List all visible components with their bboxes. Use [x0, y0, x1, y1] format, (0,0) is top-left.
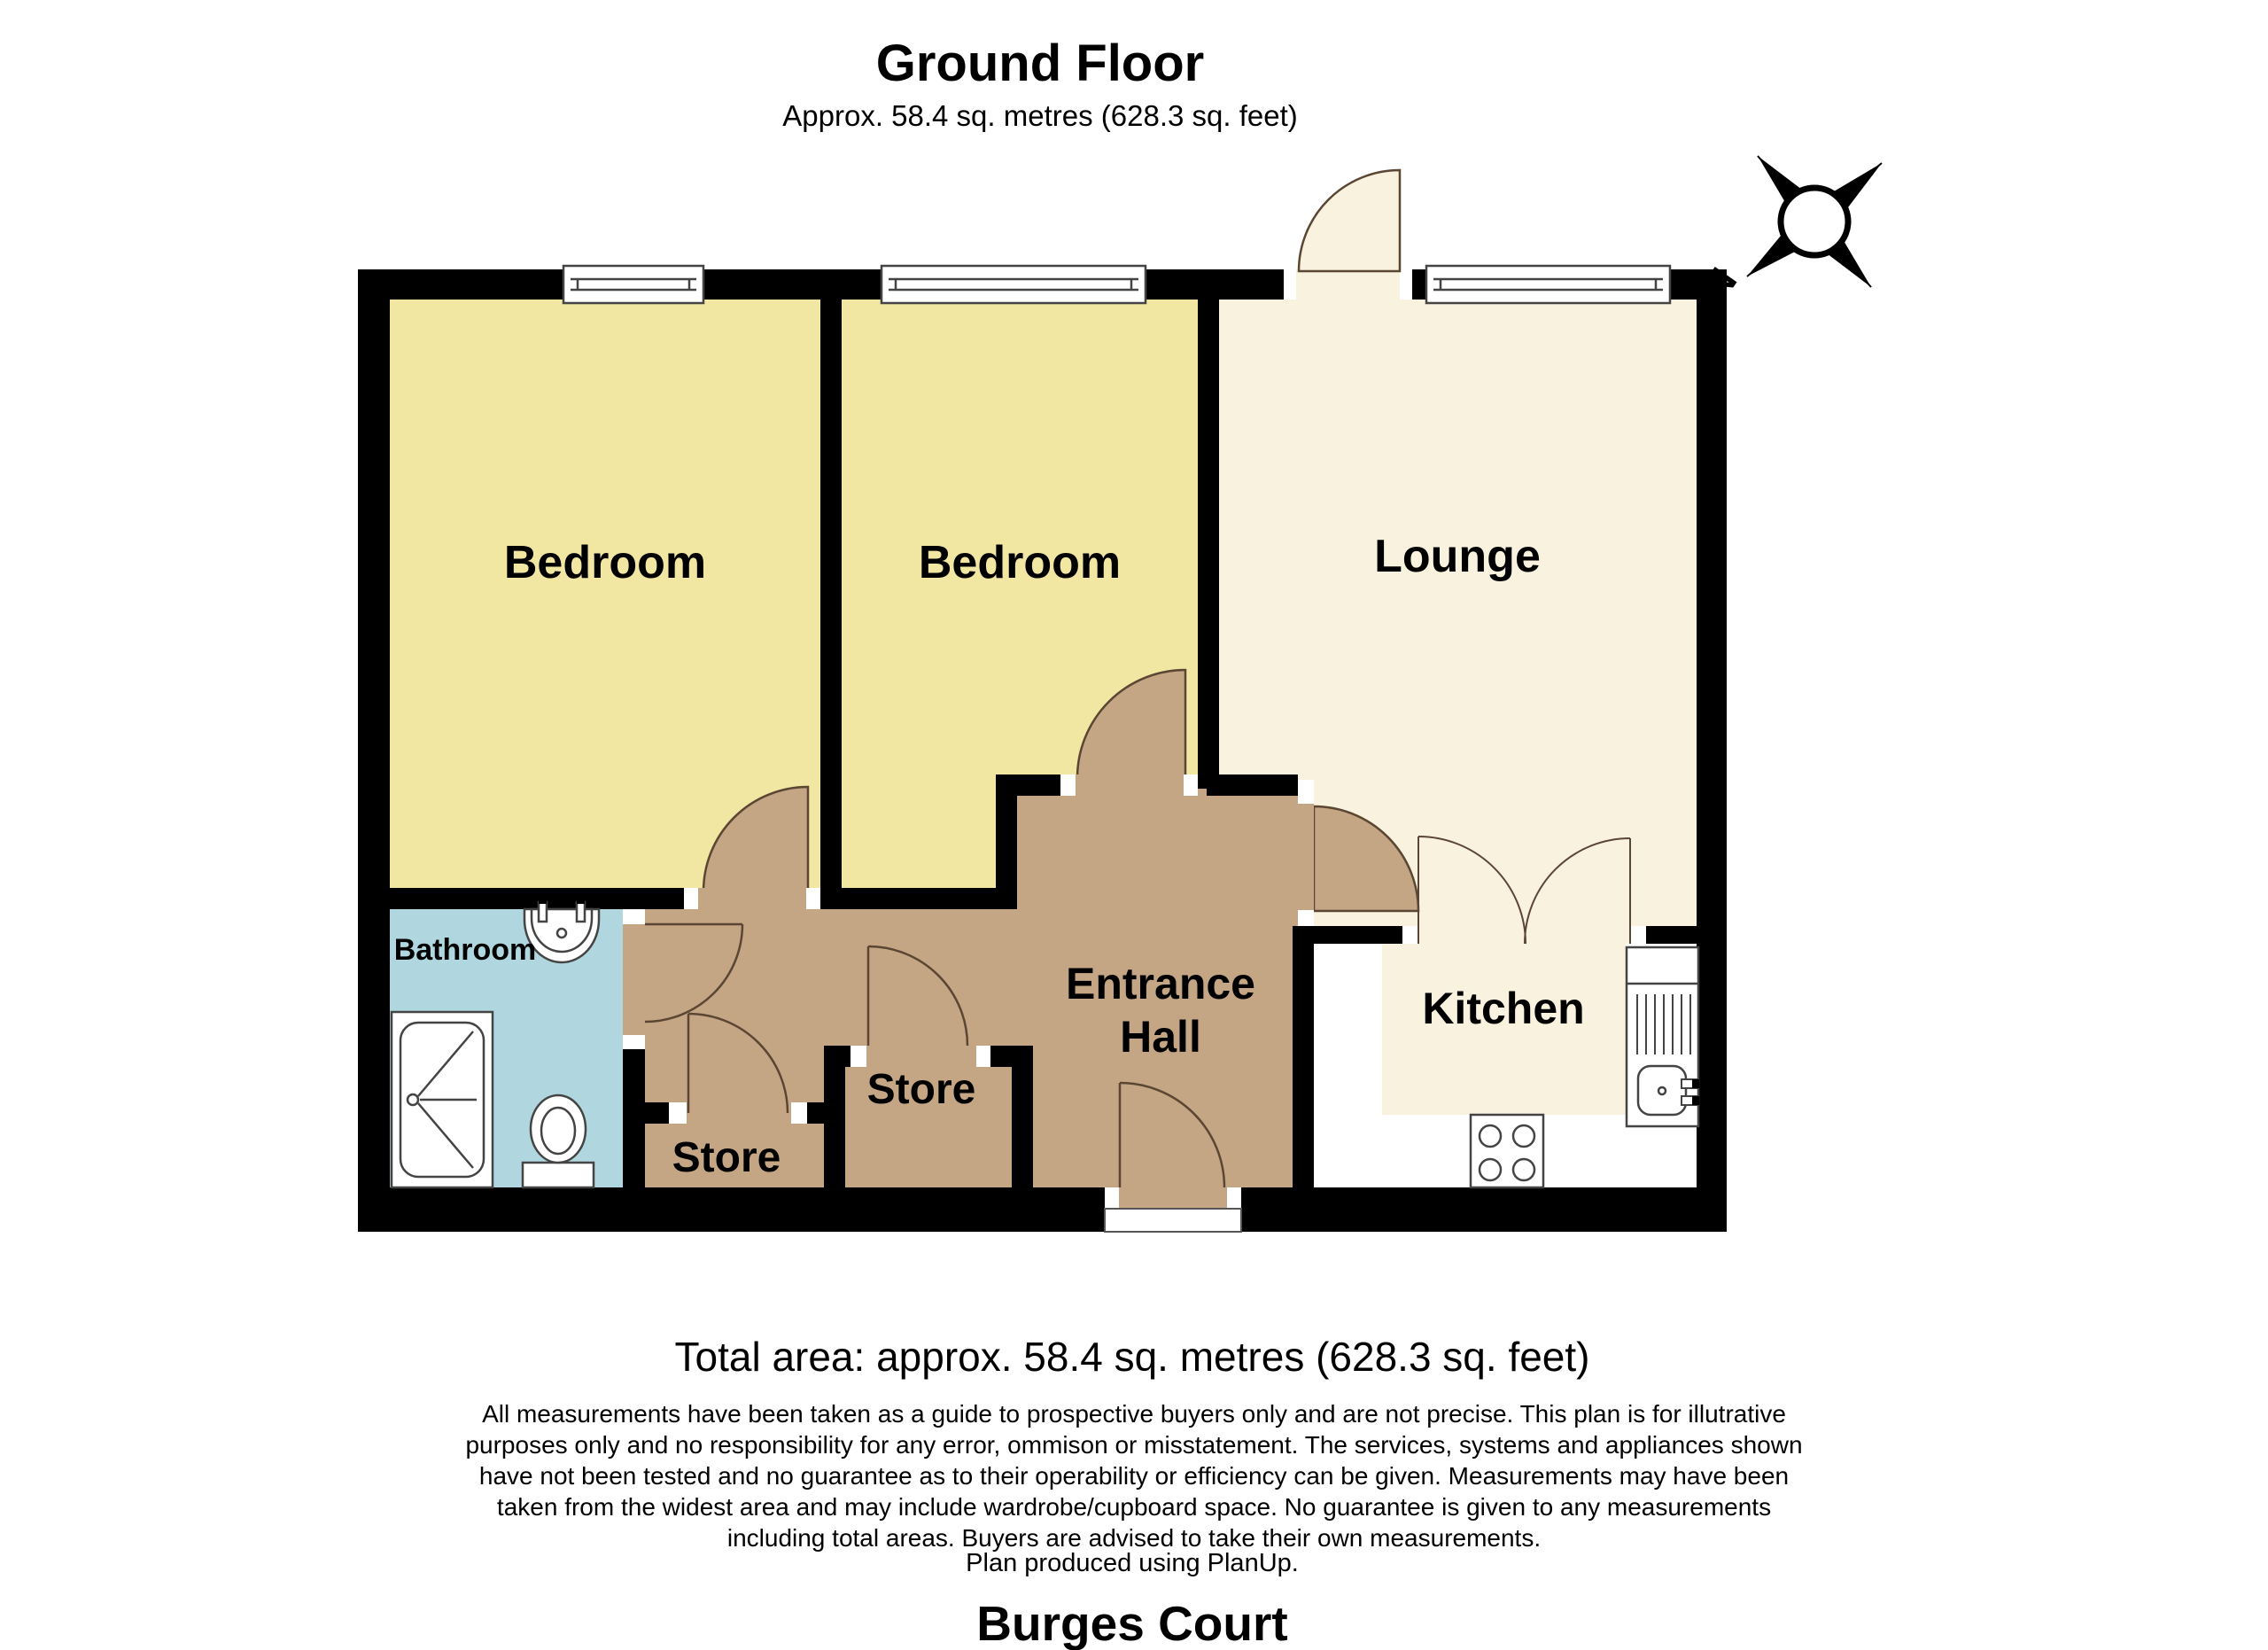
- room-label-store1: Store: [672, 1134, 781, 1181]
- room-label-bathroom: Bathroom: [394, 933, 537, 967]
- kitchen-sink-icon: [1627, 947, 1699, 1126]
- compass-circle: [1781, 188, 1848, 255]
- bath-icon: [392, 1012, 493, 1187]
- bedroom-divider-wall: [820, 300, 842, 909]
- property-name: Burges Court: [976, 1595, 1287, 1650]
- disclaimer-line: have not been tested and no guarantee as…: [0, 1460, 2268, 1491]
- window-lounge: [1426, 266, 1670, 303]
- hall-kitchen-wall: [1293, 926, 1314, 1187]
- lounge-external-door-swing: [1299, 170, 1400, 271]
- window-bedroom1: [563, 266, 703, 303]
- front-door-threshold: [1105, 1209, 1241, 1232]
- disclaimer-line: purposes only and no responsibility for …: [0, 1429, 2268, 1460]
- total-area-text: Total area: approx. 58.4 sq. metres (628…: [674, 1333, 1589, 1381]
- disclaimer-line: taken from the widest area and may inclu…: [0, 1491, 2268, 1522]
- floorplan-page: Ground Floor Approx. 58.4 sq. metres (62…: [0, 0, 2268, 1650]
- produced-by-text: Plan produced using PlanUp.: [966, 1549, 1299, 1578]
- bedroom2-lounge-wall: [1198, 300, 1219, 789]
- disclaimer-line: All measurements have been taken as a gu…: [0, 1398, 2268, 1429]
- room-label-store2: Store: [867, 1066, 976, 1113]
- front-door-area: [1105, 1187, 1241, 1232]
- store2-right-wall: [1012, 1046, 1033, 1187]
- room-label-bedroom2: Bedroom: [919, 537, 1121, 588]
- room-label-entrance-hall-line1: Entrance: [1066, 959, 1255, 1008]
- room-label-bedroom1: Bedroom: [504, 537, 706, 588]
- right-wall: [1697, 269, 1727, 1232]
- compass-rose: N: [1694, 156, 1882, 308]
- lounge-external-door: [1284, 170, 1412, 300]
- disclaimer-block: All measurements have been taken as a gu…: [0, 1398, 2268, 1553]
- bathroom-wall: [623, 1049, 645, 1187]
- left-wall: [358, 269, 390, 1232]
- bottom-wall: [358, 1187, 1727, 1232]
- stores-divider-wall: [824, 1046, 845, 1187]
- floor-fills: [390, 300, 1697, 1187]
- room-label-lounge: Lounge: [1374, 531, 1541, 582]
- room-label-kitchen: Kitchen: [1422, 984, 1584, 1033]
- window-bedroom2: [882, 266, 1146, 303]
- hob-icon: [1471, 1115, 1543, 1187]
- room-label-entrance-hall-line2: Hall: [1120, 1012, 1201, 1062]
